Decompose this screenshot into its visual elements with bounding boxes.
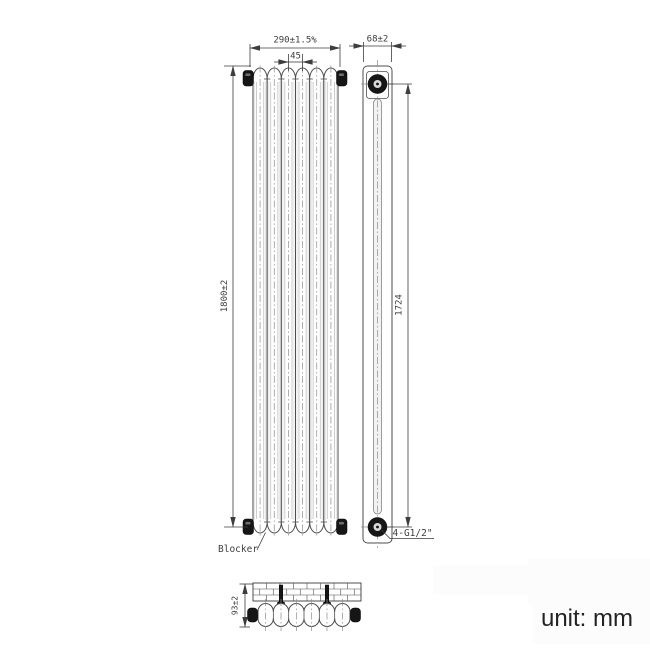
bottom-connection-plug [368, 518, 387, 537]
blocker-label: Blocker [218, 544, 258, 555]
top-connection-plug [368, 75, 387, 94]
dim-pipe-centers-label: 1724 [395, 294, 405, 316]
side-view [361, 60, 394, 548]
radiator-dimension-drawing: 290±1.5% 45 1800±2 Blocker [0, 0, 650, 650]
plan-right-cap [351, 608, 361, 622]
plan-view [248, 583, 362, 631]
bottom-right-bushing [337, 519, 348, 535]
technical-drawing: 290±1.5% 45 1800±2 Blocker [0, 0, 650, 650]
dim-width-label: 290±1.5% [273, 36, 317, 46]
dim-column-pitch-label: 45 [290, 52, 301, 62]
dim-depth-label: 68±2 [367, 35, 389, 45]
dim-height-label: 1800±2 [220, 280, 230, 313]
connections-label: 4-G1/2" [393, 528, 433, 539]
top-left-bushing [243, 71, 254, 87]
front-view [243, 66, 347, 537]
unit-label: unit: mm [541, 605, 633, 632]
top-right-bushing [337, 71, 348, 87]
plan-left-cap [248, 608, 258, 622]
dim-wall-offset-label: 93±2 [231, 596, 240, 615]
